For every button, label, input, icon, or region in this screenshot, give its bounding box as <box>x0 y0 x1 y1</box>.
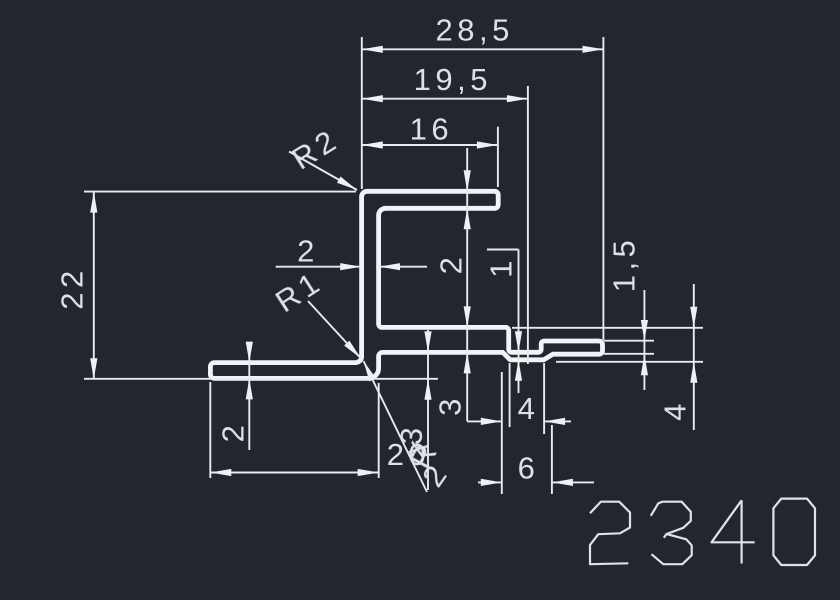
svg-text:3: 3 <box>433 394 468 416</box>
svg-text:4: 4 <box>658 399 693 421</box>
svg-text:2: 2 <box>216 421 251 443</box>
svg-text:28,5: 28,5 <box>436 13 514 48</box>
svg-text:2: 2 <box>434 253 469 275</box>
svg-text:1: 1 <box>484 256 519 278</box>
svg-text:1,5: 1,5 <box>607 236 642 293</box>
svg-text:22: 22 <box>55 266 90 309</box>
svg-text:2: 2 <box>297 234 319 269</box>
svg-text:6: 6 <box>518 451 540 486</box>
svg-text:19,5: 19,5 <box>414 62 492 97</box>
svg-text:16: 16 <box>410 112 453 147</box>
svg-text:4: 4 <box>518 391 540 426</box>
